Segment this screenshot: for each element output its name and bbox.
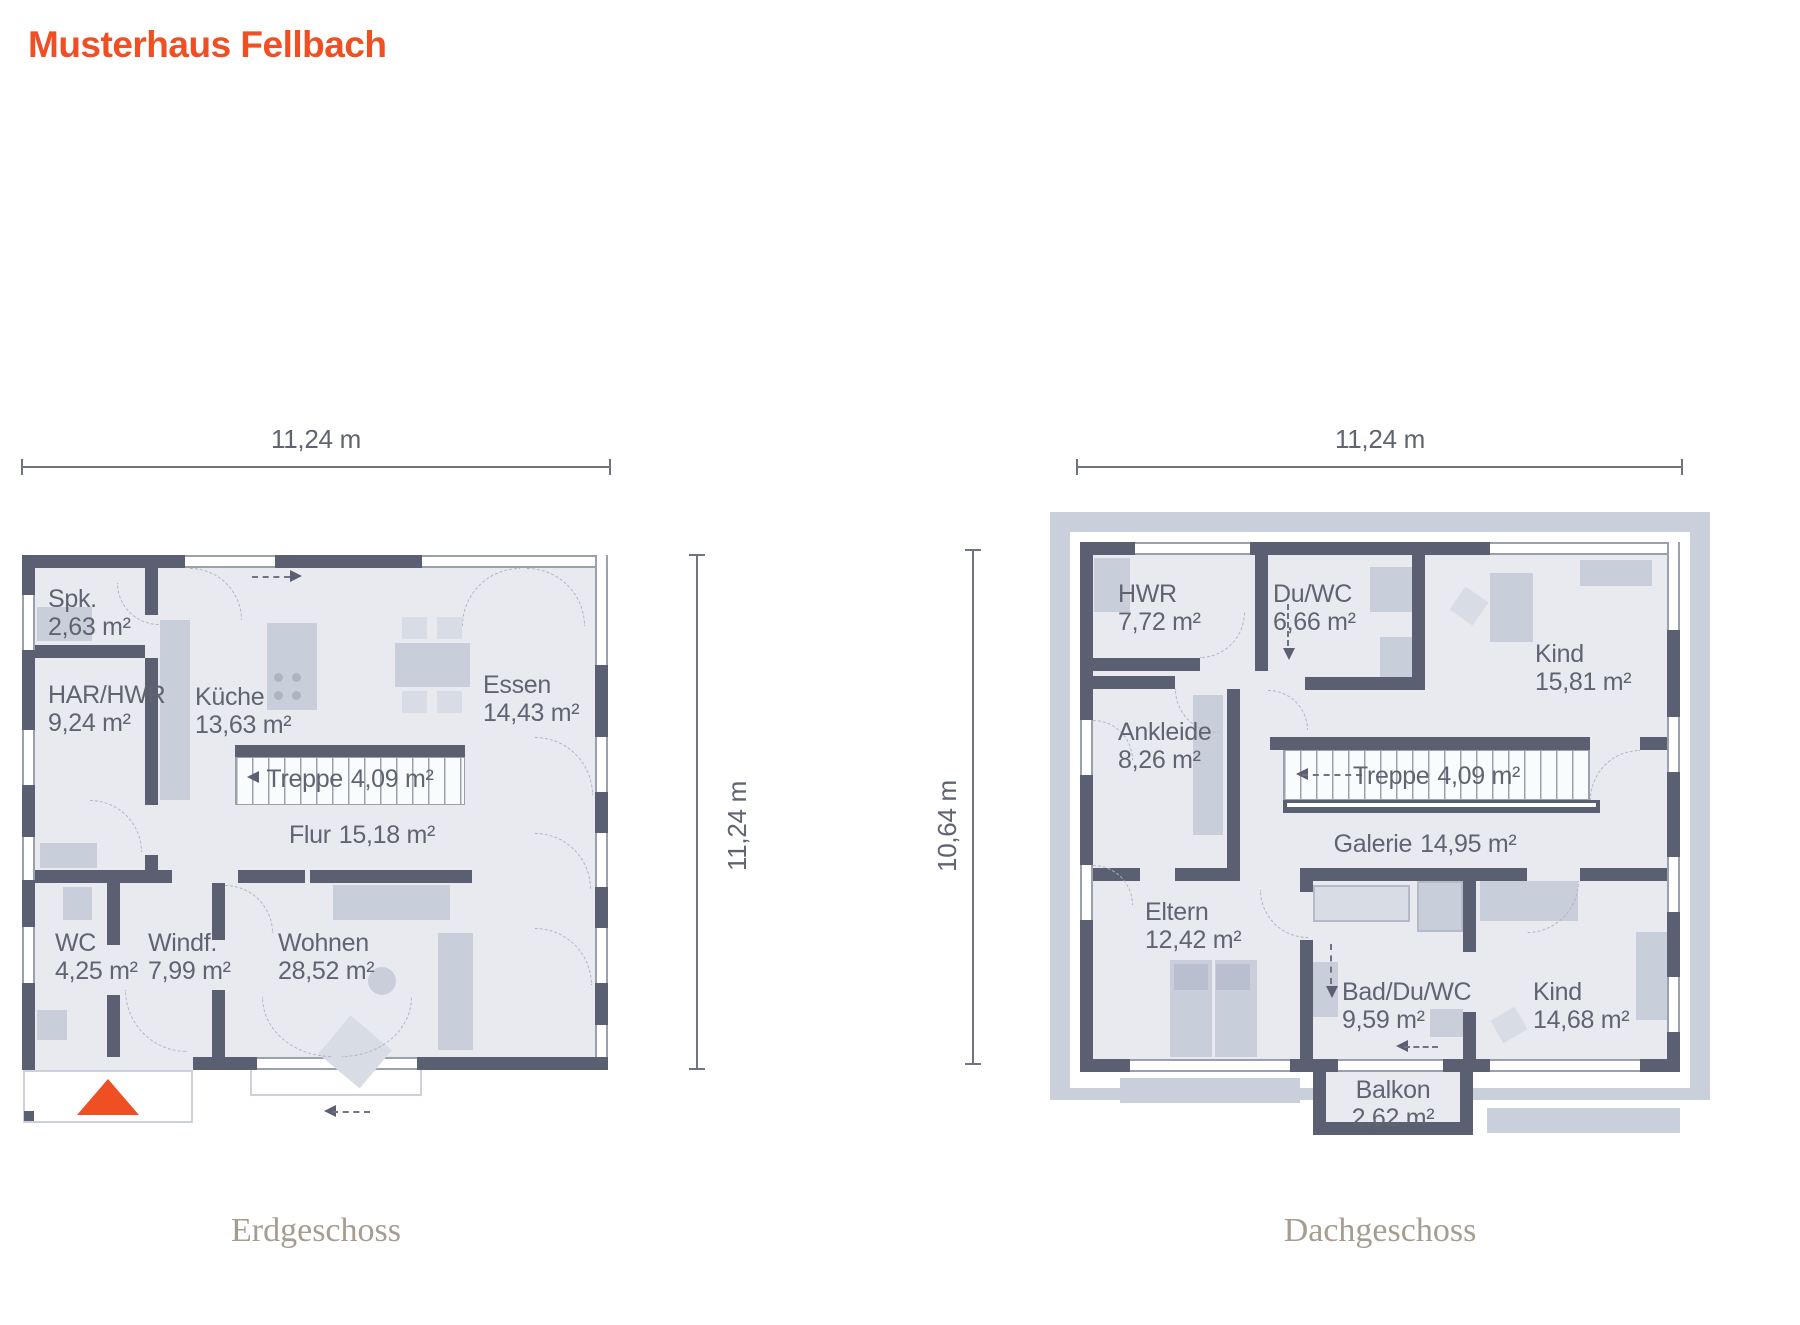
sink [1380, 637, 1412, 677]
desk [1580, 560, 1652, 586]
shelf [438, 933, 473, 1050]
wall [1305, 677, 1425, 690]
direction-arrow-icon [290, 570, 308, 582]
room-label-treppe-dg: Treppe4,09 m² [1283, 762, 1590, 790]
sofa [333, 885, 450, 920]
burner-icon [292, 691, 301, 700]
dimension-line [22, 466, 610, 468]
wall [22, 555, 185, 568]
window [595, 737, 608, 792]
dim-tick [965, 549, 981, 551]
room-label-wohnen: Wohnen28,52 m² [278, 929, 374, 985]
room-label-spk: Spk.2,63 m² [48, 585, 131, 641]
window [422, 555, 608, 568]
room-label-treppe: Treppe4,09 m² [235, 765, 465, 793]
page-title: Musterhaus Fellbach [28, 24, 387, 66]
floorplan-dachgeschoss: HWR7,72 m² Du/WC6,66 m² Kind15,81 m² Ank… [1050, 512, 1710, 1157]
window [1135, 542, 1250, 555]
direction-arrow-icon [1326, 986, 1338, 1004]
wall [235, 745, 465, 757]
wall [22, 555, 35, 595]
room-label-balkon: Balkon2,62 m² [1308, 1076, 1478, 1132]
window [22, 595, 35, 650]
direction-arrow-icon [1283, 648, 1295, 666]
appliance [40, 843, 97, 868]
direction-dash [332, 1111, 370, 1113]
wall [22, 650, 35, 730]
floorplan-sheet: Musterhaus Fellbach 11,24 m 11,24 m 11,2… [0, 0, 1800, 1325]
wall [1270, 737, 1590, 750]
bed-split [1212, 960, 1215, 1057]
wall [595, 887, 608, 928]
room-label-wc: WC4,25 m² [55, 929, 138, 985]
chair [402, 617, 427, 639]
wall [595, 983, 608, 1025]
roof-edge [1487, 1108, 1680, 1133]
room-label-kueche: Küche13,63 m² [195, 683, 291, 739]
room-label-flur: Flur15,18 m² [262, 821, 462, 849]
dimension-line [1077, 466, 1683, 468]
balcony-door [1338, 1059, 1443, 1072]
window [1490, 1059, 1640, 1072]
wall [1093, 676, 1175, 689]
pillow [1174, 964, 1208, 990]
burner-icon [292, 673, 301, 682]
dim-height-dg: 10,64 m [932, 756, 960, 896]
window [1130, 1059, 1290, 1072]
wall [1080, 920, 1093, 1072]
wall [1250, 542, 1490, 555]
dining-table [395, 643, 470, 687]
shower [1370, 567, 1412, 612]
pillow [1216, 964, 1250, 990]
room-label-ankleide: Ankleide8,26 m² [1118, 718, 1212, 774]
wall [1640, 737, 1667, 750]
wall [1667, 772, 1680, 857]
post [24, 1111, 34, 1121]
wall [275, 555, 422, 568]
bed [1490, 573, 1533, 642]
bathtub [1313, 885, 1410, 922]
wall [595, 665, 608, 737]
caption-erdgeschoss: Erdgeschoss [22, 1212, 610, 1250]
wall [22, 785, 35, 837]
direction-dash [1404, 1046, 1438, 1048]
window [595, 928, 608, 983]
roof-edge [1120, 1078, 1300, 1103]
shower [1417, 881, 1463, 932]
room-label-har-hwr: HAR/HWR9,24 m² [48, 681, 165, 737]
window [1667, 977, 1680, 1032]
dim-tick [965, 1063, 981, 1065]
dim-tick [1681, 459, 1683, 475]
window [22, 730, 35, 785]
room-label-du-wc: Du/WC6,66 m² [1273, 580, 1356, 636]
window [22, 837, 35, 880]
window [185, 555, 275, 568]
dim-tick [1076, 459, 1078, 475]
toilet [63, 887, 92, 920]
window [595, 555, 608, 665]
window [1490, 542, 1667, 555]
wall [212, 990, 225, 1057]
wall [1463, 868, 1476, 952]
room-label-essen: Essen14,43 m² [483, 671, 579, 727]
wall [1300, 868, 1527, 881]
wall [310, 870, 472, 883]
dim-tick [689, 1068, 705, 1070]
dim-width-dg: 11,24 m [1077, 424, 1683, 455]
wall [35, 870, 172, 883]
wall [1290, 1059, 1338, 1072]
room-label-kind-2: Kind14,68 m² [1533, 978, 1629, 1034]
chair [402, 691, 427, 713]
wall [1667, 912, 1680, 977]
desk [1636, 932, 1667, 1020]
wall [1640, 1059, 1680, 1072]
wall [22, 880, 35, 927]
room-label-windfang: Windf.7,99 m² [148, 929, 231, 985]
wall [1443, 1059, 1490, 1072]
wall [1667, 630, 1680, 717]
sink [37, 1010, 67, 1040]
wall [1080, 1059, 1130, 1072]
dimension-line [972, 550, 974, 1065]
window [1667, 717, 1680, 772]
burner-icon [274, 673, 283, 682]
chair [437, 691, 462, 713]
wall [1080, 542, 1093, 720]
wall [1412, 555, 1425, 690]
dim-tick [21, 459, 23, 475]
wall [22, 983, 35, 1070]
window [595, 833, 608, 887]
room-label-galerie: Galerie14,95 m² [1305, 830, 1545, 858]
wall [1227, 689, 1240, 868]
wall [1255, 555, 1268, 671]
wall [1580, 868, 1667, 881]
wall [595, 792, 608, 833]
dim-width-eg: 11,24 m [22, 424, 610, 455]
direction-dash [1330, 944, 1332, 984]
caption-dachgeschoss: Dachgeschoss [1077, 1212, 1683, 1250]
window [1080, 865, 1093, 920]
floorplan-erdgeschoss: Spk.2,63 m² HAR/HWR9,24 m² Küche13,63 m²… [22, 555, 672, 1135]
wall [107, 995, 120, 1057]
wall [238, 870, 305, 883]
terrace-step [250, 1070, 422, 1096]
room-label-hwr: HWR7,72 m² [1118, 580, 1201, 636]
direction-dash [252, 576, 290, 578]
chair [437, 617, 462, 639]
dimension-line [696, 555, 698, 1070]
room-label-eltern: Eltern12,42 m² [1145, 898, 1241, 954]
wall [1080, 775, 1093, 865]
dim-height-eg: 11,24 m [722, 756, 750, 896]
room-label-bad-du-wc: Bad/Du/WC9,59 m² [1342, 978, 1471, 1034]
wall [417, 1057, 608, 1070]
entrance-marker-icon [77, 1079, 139, 1115]
dim-tick [609, 459, 611, 475]
stair-rail [1287, 803, 1596, 807]
room-label-kind-1: Kind15,81 m² [1535, 640, 1631, 696]
wall [35, 645, 145, 658]
wall [193, 1057, 257, 1070]
window [1667, 542, 1680, 630]
wall [1300, 940, 1313, 1059]
w all [1175, 868, 1240, 881]
wall [1093, 658, 1200, 671]
window [1080, 720, 1093, 775]
dim-tick [689, 554, 705, 556]
window [1667, 857, 1680, 912]
window [22, 927, 35, 983]
